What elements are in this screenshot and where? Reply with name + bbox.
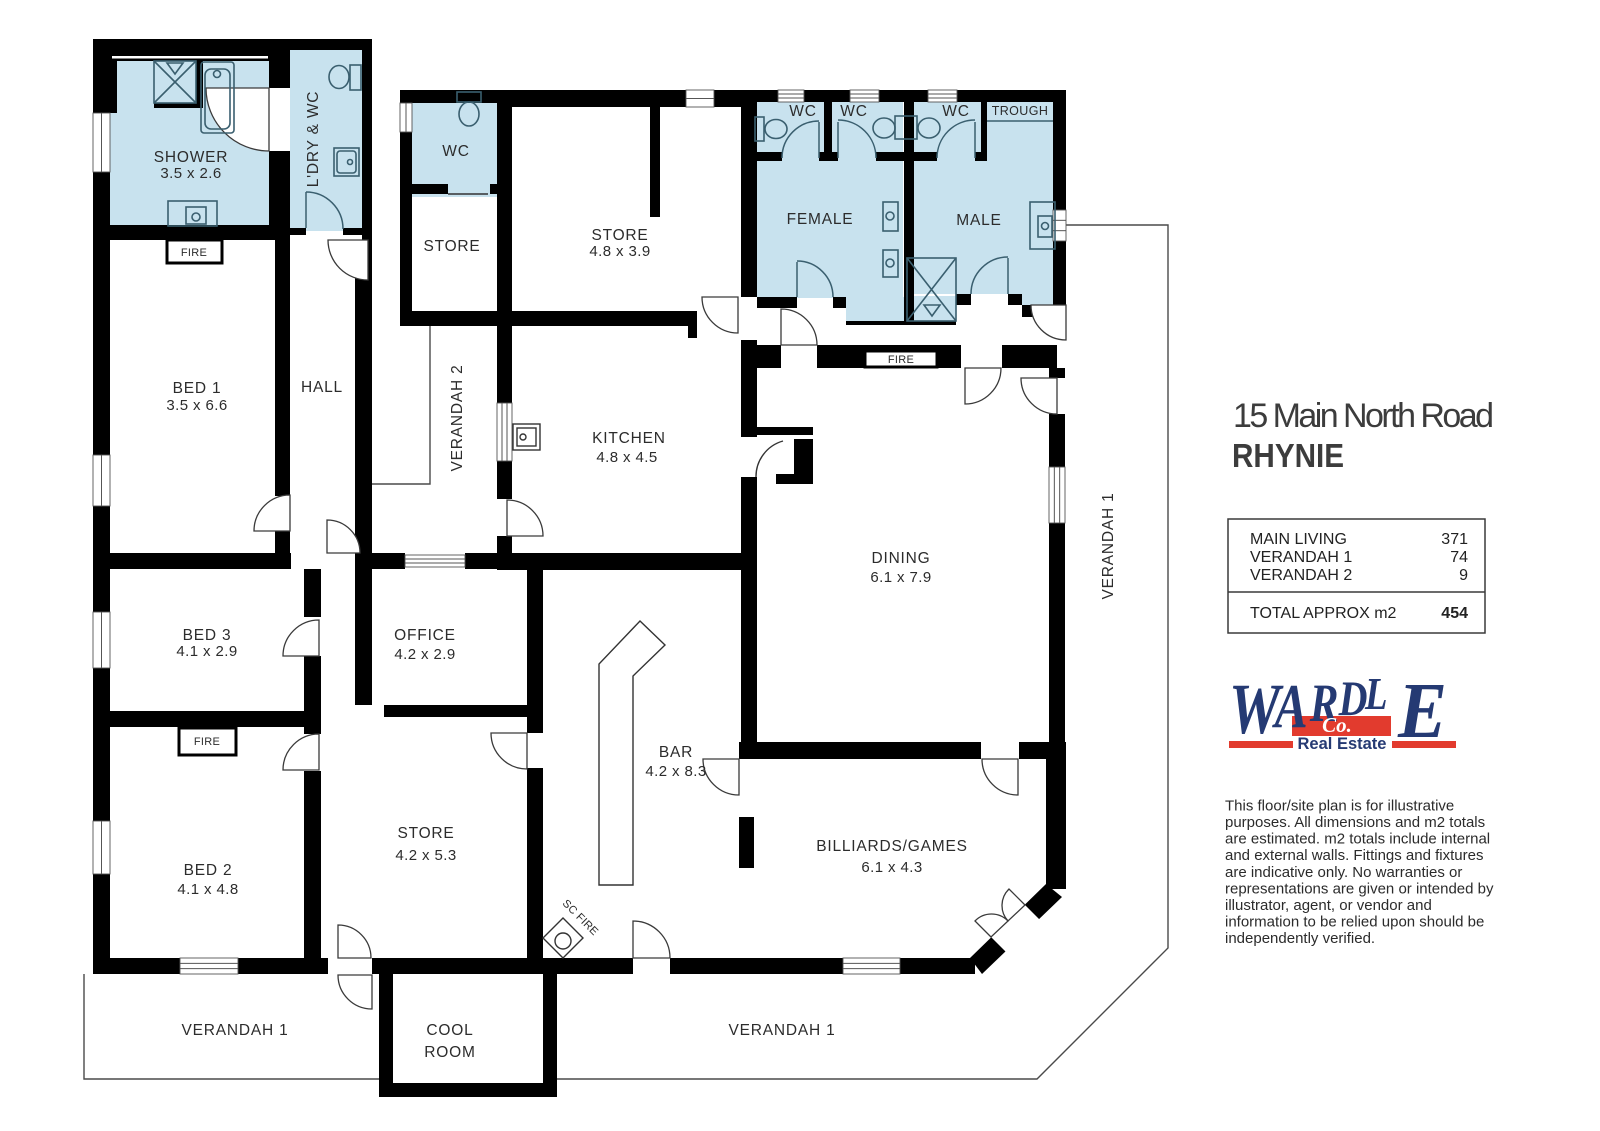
svg-text:BILLIARDS/GAMES: BILLIARDS/GAMES xyxy=(816,838,968,855)
svg-text:6.1 x 7.9: 6.1 x 7.9 xyxy=(870,569,931,586)
svg-text:FIRE: FIRE xyxy=(888,354,914,366)
svg-text:VERANDAH 2: VERANDAH 2 xyxy=(1250,567,1352,584)
svg-text:BED 1: BED 1 xyxy=(173,380,222,397)
svg-text:VERANDAH 1: VERANDAH 1 xyxy=(1250,549,1352,566)
svg-text:representations are given or i: representations are given or intended by xyxy=(1225,880,1494,897)
svg-text:SHOWER: SHOWER xyxy=(154,149,229,166)
svg-text:MALE: MALE xyxy=(956,212,1001,229)
svg-text:4.8 x 3.9: 4.8 x 3.9 xyxy=(589,243,650,260)
svg-text:371: 371 xyxy=(1441,531,1468,548)
svg-text:L: L xyxy=(1364,669,1387,720)
svg-text:15 Main North Road: 15 Main North Road xyxy=(1233,397,1494,435)
svg-text:purposes. All dimensions and m: purposes. All dimensions and m2 totals xyxy=(1225,814,1485,831)
svg-text:4.2 x 8.3: 4.2 x 8.3 xyxy=(645,763,706,780)
svg-text:3.5 x 6.6: 3.5 x 6.6 xyxy=(166,397,227,414)
svg-text:Co.: Co. xyxy=(1322,713,1352,737)
svg-text:FIRE: FIRE xyxy=(181,247,207,259)
svg-text:WC: WC xyxy=(789,103,816,120)
svg-text:VERANDAH 1: VERANDAH 1 xyxy=(728,1022,835,1039)
svg-text:L'DRY & WC: L'DRY & WC xyxy=(305,91,322,188)
svg-text:COOL: COOL xyxy=(426,1022,473,1039)
svg-text:VERANDAH 1: VERANDAH 1 xyxy=(1100,492,1117,599)
svg-text:STORE: STORE xyxy=(423,238,480,255)
svg-text:MAIN LIVING: MAIN LIVING xyxy=(1250,531,1347,548)
svg-text:ROOM: ROOM xyxy=(424,1044,475,1061)
svg-text:OFFICE: OFFICE xyxy=(394,627,456,644)
svg-text:BED 2: BED 2 xyxy=(184,862,233,879)
svg-text:information to be relied upon: information to be relied upon should be xyxy=(1225,914,1484,931)
svg-text:74: 74 xyxy=(1450,549,1468,566)
svg-text:4.1 x 2.9: 4.1 x 2.9 xyxy=(176,643,237,660)
svg-text:are indicative only. No warran: are indicative only. No warranties or xyxy=(1225,864,1462,881)
svg-text:4.8 x 4.5: 4.8 x 4.5 xyxy=(596,449,657,466)
svg-text:4.1 x 4.8: 4.1 x 4.8 xyxy=(177,881,238,898)
svg-text:RHYNIE: RHYNIE xyxy=(1232,437,1344,474)
svg-text:A: A xyxy=(1272,673,1308,741)
svg-text:illustrator, agent, or vendor: illustrator, agent, or vendor and xyxy=(1225,897,1432,914)
svg-text:are estimated. m2 totals inclu: are estimated. m2 totals include interna… xyxy=(1225,831,1490,848)
svg-text:STORE: STORE xyxy=(397,825,454,842)
svg-text:BED 3: BED 3 xyxy=(183,627,232,644)
svg-text:FEMALE: FEMALE xyxy=(787,211,854,228)
svg-text:VERANDAH 2: VERANDAH 2 xyxy=(449,364,466,471)
svg-text:4.2 x 2.9: 4.2 x 2.9 xyxy=(394,646,455,663)
svg-text:TROUGH: TROUGH xyxy=(992,104,1049,118)
svg-text:3.5 x 2.6: 3.5 x 2.6 xyxy=(160,165,221,182)
svg-text:BAR: BAR xyxy=(659,744,693,761)
svg-text:FIRE: FIRE xyxy=(194,736,220,748)
svg-text:VERANDAH 1: VERANDAH 1 xyxy=(181,1022,288,1039)
svg-text:WC: WC xyxy=(942,103,969,120)
svg-text:STORE: STORE xyxy=(591,227,648,244)
svg-text:independently verified.: independently verified. xyxy=(1225,930,1375,947)
svg-text:HALL: HALL xyxy=(301,379,343,396)
svg-text:This floor/site plan is for il: This floor/site plan is for illustrative xyxy=(1225,797,1454,814)
svg-text:WC: WC xyxy=(840,103,867,120)
svg-text:4.2 x 5.3: 4.2 x 5.3 xyxy=(395,847,456,864)
svg-text:TOTAL APPROX m2: TOTAL APPROX m2 xyxy=(1250,605,1397,622)
svg-text:DINING: DINING xyxy=(871,550,930,567)
svg-text:WC: WC xyxy=(442,143,469,160)
svg-text:454: 454 xyxy=(1441,605,1468,622)
svg-text:6.1 x 4.3: 6.1 x 4.3 xyxy=(861,859,922,876)
svg-text:KITCHEN: KITCHEN xyxy=(592,430,666,447)
svg-text:and external walls. Fittings a: and external walls. Fittings and fixture… xyxy=(1225,847,1483,864)
svg-text:Real Estate: Real Estate xyxy=(1298,735,1387,753)
svg-text:E: E xyxy=(1397,667,1447,755)
svg-text:9: 9 xyxy=(1459,567,1468,584)
